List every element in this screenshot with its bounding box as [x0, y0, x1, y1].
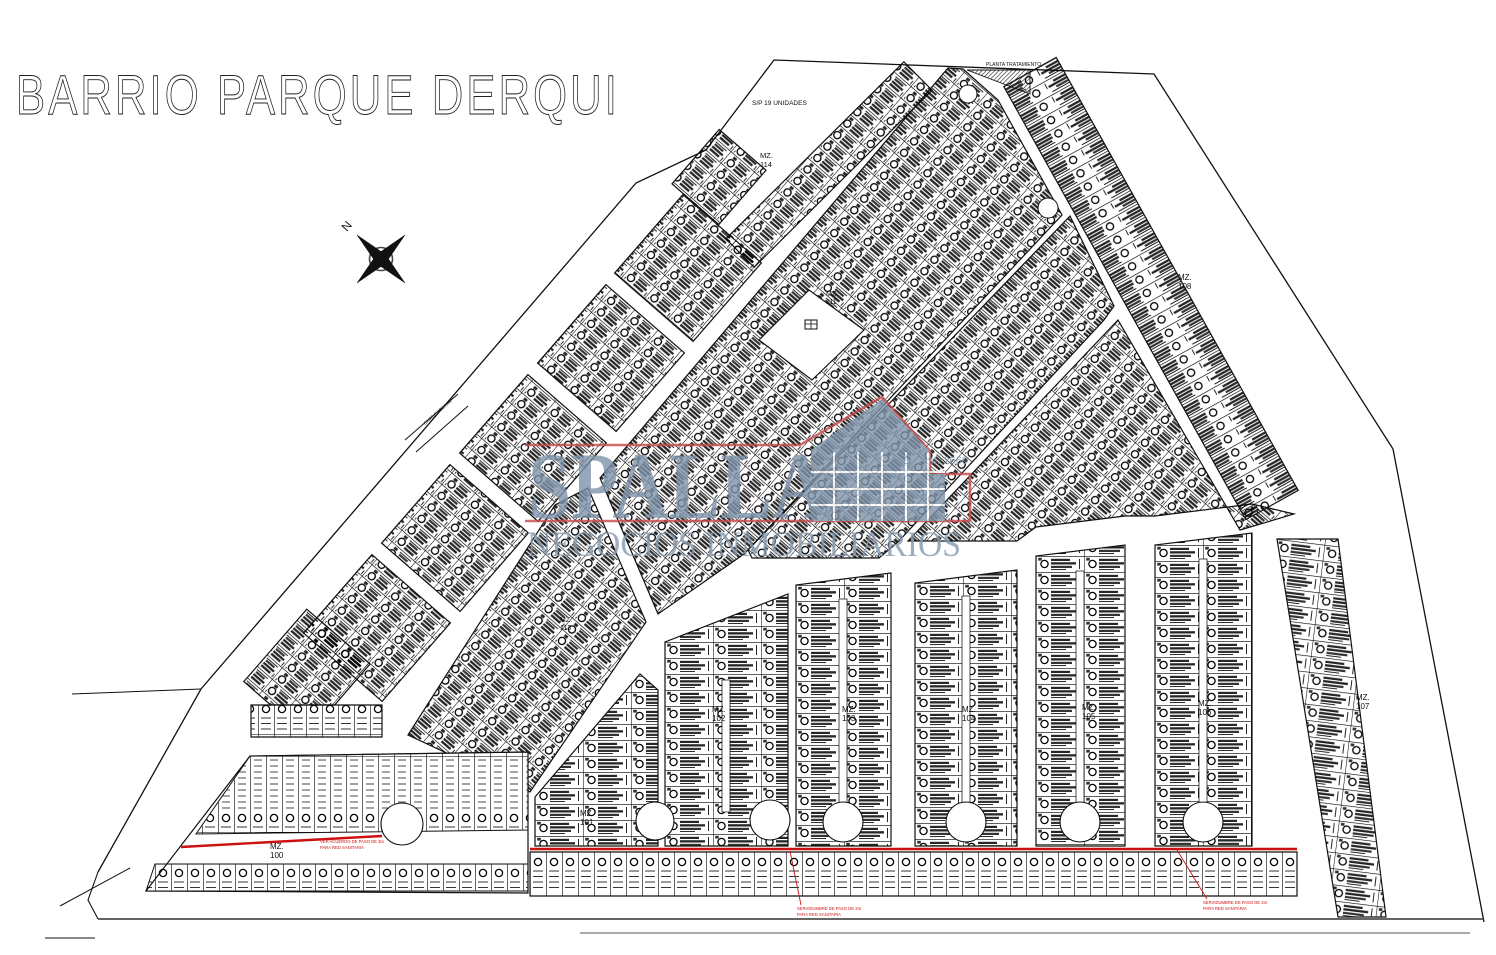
svg-text:102: 102 — [712, 714, 726, 723]
svg-text:105: 105 — [1082, 712, 1096, 721]
svg-text:MZ.: MZ. — [962, 705, 976, 714]
svg-text:O. S.M. 2660: O. S.M. 2660 — [903, 455, 968, 467]
svg-text:111: 111 — [826, 299, 837, 306]
svg-text:100: 100 — [270, 851, 284, 860]
svg-text:103: 103 — [842, 714, 856, 723]
svg-text:VER ACUERDO DE PASO DE 3m: VER ACUERDO DE PASO DE 3m — [320, 839, 384, 844]
svg-text:PLANTA TRATAMIENTO: PLANTA TRATAMIENTO — [986, 62, 1041, 68]
svg-text:MZ.: MZ. — [712, 705, 726, 714]
svg-text:MZ.: MZ. — [270, 842, 284, 851]
svg-text:S/P 19 UNIDADES: S/P 19 UNIDADES — [752, 100, 807, 107]
svg-text:MZ.: MZ. — [1356, 693, 1370, 702]
svg-text:114: 114 — [760, 160, 772, 169]
svg-text:SERVIDUMBRE DE PASO DE 2m: SERVIDUMBRE DE PASO DE 2m — [797, 906, 862, 911]
svg-text:104: 104 — [962, 714, 976, 723]
svg-text:101: 101 — [580, 818, 594, 827]
svg-text:MZ.: MZ. — [560, 617, 572, 624]
svg-text:BARRIO PARQUE DERQUI: BARRIO PARQUE DERQUI — [16, 63, 620, 126]
svg-text:MZ.: MZ. — [760, 151, 773, 160]
svg-text:MZ.: MZ. — [1198, 699, 1212, 708]
svg-text:SERVIDUMBRE DE PASO DE 2m: SERVIDUMBRE DE PASO DE 2m — [1203, 900, 1268, 905]
svg-text:107: 107 — [1356, 702, 1370, 711]
svg-text:PARA RED SANITARIA: PARA RED SANITARIA — [1203, 906, 1247, 911]
svg-text:MZ.: MZ. — [842, 705, 856, 714]
svg-text:MZ.: MZ. — [826, 291, 838, 298]
svg-text:MZ.: MZ. — [1082, 703, 1096, 712]
svg-text:MZ.: MZ. — [1178, 273, 1192, 282]
svg-text:PARA RED SANITARIA: PARA RED SANITARIA — [797, 912, 841, 917]
svg-text:113: 113 — [560, 625, 571, 632]
svg-text:106: 106 — [1198, 708, 1212, 717]
svg-text:PARA RED SANITARIA: PARA RED SANITARIA — [320, 845, 364, 850]
svg-text:108: 108 — [1178, 282, 1192, 291]
svg-text:MZ.: MZ. — [580, 809, 594, 818]
svg-text:NEGOCIOS INMOBILIARIOS: NEGOCIOS INMOBILIARIOS — [527, 524, 961, 564]
